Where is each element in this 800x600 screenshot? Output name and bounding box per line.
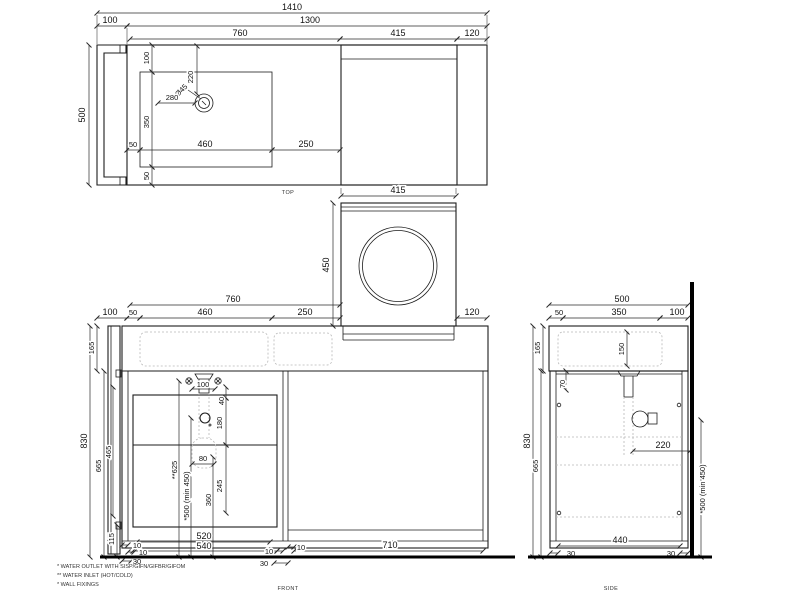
front-view: 760 100 50 460 250 120 <box>79 294 515 592</box>
dim-right-section: 120 <box>464 28 479 38</box>
dim-side-depth: 500 <box>614 294 629 304</box>
dim-front-sink-left: 50 <box>129 308 137 317</box>
dim-washer-bay: 415 <box>390 28 405 38</box>
dim-front-wall-offset: 100 <box>102 307 117 317</box>
footnote-water-outlet: * WATER OUTLET WITH SISP/GIFN/GIFBR/GIFO… <box>57 564 186 570</box>
dim-faucet-back: 220 <box>186 71 195 84</box>
faucet-hole-mark <box>202 101 206 105</box>
side-drain-flange <box>618 371 640 376</box>
dim-washer-width: 415 <box>390 185 405 195</box>
dim-drawer-zone: 465 <box>104 446 113 459</box>
top-view: 1410 100 1300 760 415 120 500 100 220 Ø4… <box>77 2 487 196</box>
dim-inlet-height: **625 <box>170 461 179 479</box>
dim-washer-height: 450 <box>321 257 331 272</box>
front-outline <box>122 326 488 548</box>
side-cabinet-outline <box>550 371 688 548</box>
side-trap <box>632 411 648 427</box>
dim-opening-width: 540 <box>196 541 211 551</box>
washer-bay-outline <box>341 45 457 185</box>
dim-total-height: 830 <box>79 433 89 448</box>
footnote-water-inlet: ** WATER INLET (HOT/COLD) <box>57 573 133 579</box>
fixing-dot <box>677 403 681 407</box>
dim-apron: 70 <box>558 380 567 388</box>
dim-side-total-h: 830 <box>522 433 532 448</box>
dim-245: 245 <box>215 480 224 493</box>
dim-side-basin: 350 <box>611 307 626 317</box>
dim-side-front-gap: 50 <box>555 308 563 317</box>
dim-front-right-section: 120 <box>464 307 479 317</box>
wall-rail <box>108 326 120 554</box>
dim-gap-10d: 10 <box>297 543 305 552</box>
water-outlet-icon <box>200 413 210 423</box>
footnotes: * WATER OUTLET WITH SISP/GIFN/GIFBR/GIFO… <box>57 564 186 588</box>
dim-360: 360 <box>204 494 213 507</box>
side-view-label: SIDE <box>604 586 618 592</box>
dim-faucet-left: 280 <box>166 93 179 102</box>
technical-drawing: 1410 100 1300 760 415 120 500 100 220 Ø4… <box>0 0 800 600</box>
dim-inlet-drop: 40 <box>217 397 226 405</box>
dim-counter-height: 165 <box>87 342 96 355</box>
dim-outlet-height: *500 (min 450) <box>182 471 191 521</box>
outlet-dot <box>209 424 211 426</box>
washer-door-inner <box>363 231 434 302</box>
counter-hidden-joint <box>274 333 332 365</box>
fixing-dot <box>677 511 681 515</box>
washer-body <box>341 203 456 326</box>
dim-open-bay-width: 710 <box>382 540 397 550</box>
dim-front-left-section: 760 <box>225 294 240 304</box>
wall-bracket-outline <box>97 45 126 185</box>
dim-inlet-spacing: 100 <box>197 380 210 389</box>
drain-flange <box>195 374 213 379</box>
fixing-dot <box>557 511 561 515</box>
sink-hidden-outline <box>140 332 268 366</box>
footnote-wall-fixings: * WALL FIXINGS <box>57 582 99 588</box>
dim-front-sink-width: 460 <box>197 307 212 317</box>
dim-margin-30b: 30 <box>260 559 268 568</box>
sink-cutout-outline <box>140 72 272 167</box>
front-view-label: FRONT <box>278 586 299 592</box>
side-view: 500 50 350 100 165 <box>522 282 712 592</box>
dim-left-section: 760 <box>232 28 247 38</box>
dim-sink-back: 100 <box>142 52 151 65</box>
dim-plinth-height: 115 <box>107 533 116 545</box>
dim-trap-width: 80 <box>199 454 207 463</box>
dim-wall-offset: 100 <box>102 15 117 25</box>
dim-side-cabinet-h: 665 <box>531 460 540 473</box>
dim-sink-width: 460 <box>197 139 212 149</box>
dim-base-width: 440 <box>612 535 627 545</box>
dim-sink-front-gap: 50 <box>142 172 151 180</box>
countertop-outline <box>127 45 487 185</box>
dim-basin-depth: 150 <box>617 343 626 356</box>
dim-side-counter-h: 165 <box>533 342 542 355</box>
dim-front-sink-right: 250 <box>297 307 312 317</box>
side-basin-hidden <box>558 332 662 366</box>
dim-trap-offset: 220 <box>655 440 670 450</box>
top-view-label: TOP <box>282 190 294 196</box>
dim-gap-10c: 10 <box>265 547 273 556</box>
dim-sink-left-gap: 50 <box>129 140 137 149</box>
side-trap-outlet <box>648 413 657 424</box>
dim-side-outlet-height: *500 (min 450) <box>698 464 707 514</box>
dim-outlet-drop: 180 <box>215 417 224 430</box>
dim-side-back-gap: 100 <box>669 307 684 317</box>
washer-door-outer <box>359 227 437 305</box>
drawing-svg: 1410 100 1300 760 415 120 500 100 220 Ø4… <box>0 0 800 600</box>
fixing-dot <box>557 403 561 407</box>
dim-depth: 500 <box>77 107 87 122</box>
washer-elevation: 415 450 <box>321 185 456 340</box>
dim-cabinet-height: 665 <box>94 460 103 473</box>
dim-drawer-width: 520 <box>196 531 211 541</box>
trap-hidden-outline <box>192 438 216 468</box>
dim-sink-depth: 350 <box>142 116 151 129</box>
dim-overall-width: 1410 <box>282 2 302 12</box>
dim-sink-right-gap: 250 <box>298 139 313 149</box>
dim-unit-width: 1300 <box>300 15 320 25</box>
